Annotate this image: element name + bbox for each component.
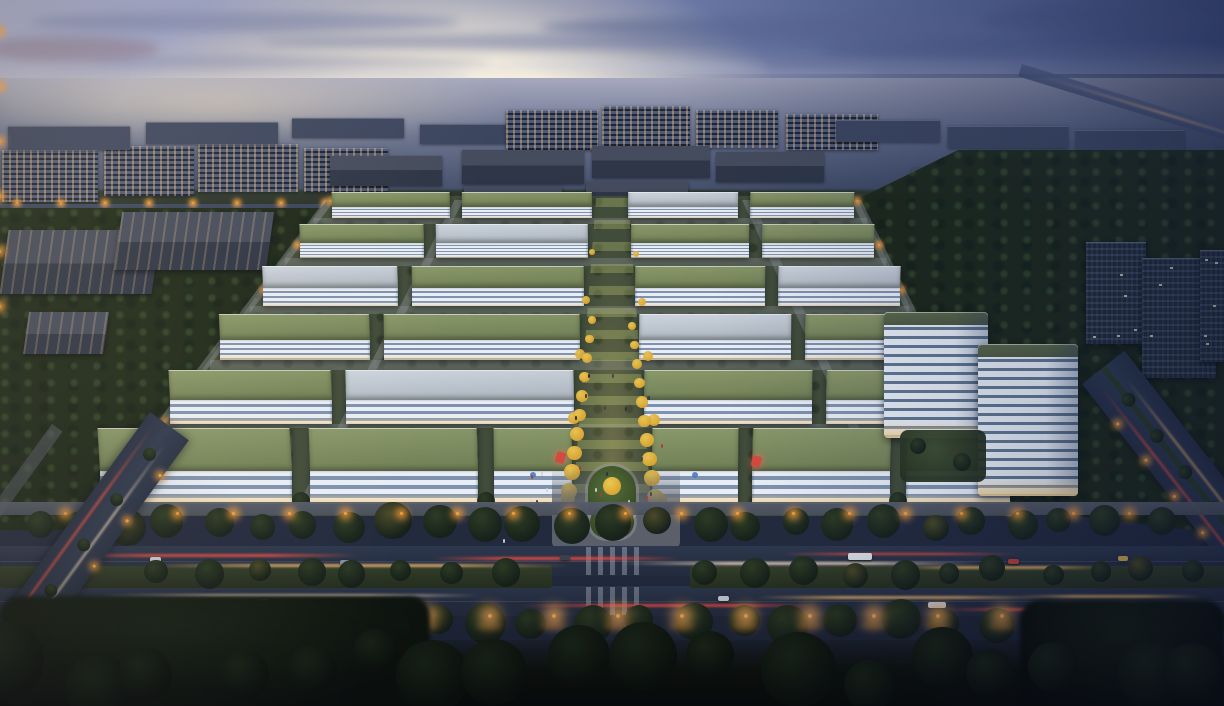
canopy-tree [218,649,269,700]
ginkgo-tree [567,446,582,461]
pedestrian [595,488,597,492]
boulevard-tree [492,558,521,587]
ground-floor-glow [412,301,584,306]
canopy-tree [548,625,610,687]
cloud [30,12,460,32]
canopy-tree [912,627,973,688]
street-lamp [736,512,739,515]
traffic-light-trail [520,604,820,607]
street-lamp [60,202,62,204]
boulevard-tree [195,559,225,589]
street-lamp [904,512,907,515]
street-lamp [400,512,403,515]
distant-warehouse [592,146,710,178]
green-roof [332,192,450,207]
ground-floor-glow [170,417,332,424]
building-facade [346,400,574,424]
tower-garden [900,430,986,482]
building-facade [263,288,398,306]
campus-building [762,224,874,258]
boulevard-tree [250,514,276,540]
lamp-glow-pool [860,622,886,630]
building-facade [384,340,580,360]
green-roof [635,266,765,288]
pedestrian [604,406,606,410]
building-facade [462,207,592,218]
campus-building [263,266,398,306]
boulevard-tree [923,515,949,541]
street-lamp [16,202,18,204]
lamp-glow-pool [796,622,822,630]
street-lamp [125,519,129,523]
lamp-glow-pool [732,622,758,630]
dark-warehouse [114,212,274,270]
green-roof [762,224,875,243]
ginkgo-tree [628,322,636,330]
distant-midrise [420,124,520,144]
green-roof [384,314,580,340]
cloud [980,6,1224,36]
campus-building [300,224,424,258]
distant-midrise-lit [602,106,690,148]
lit-window [1117,335,1120,337]
boulevard-tree [740,558,770,588]
street-lamp [936,614,940,618]
street-lamp [616,614,620,618]
lit-window [1120,274,1123,276]
pedestrian [625,407,627,411]
street-lamp [792,512,795,515]
street-lamp [456,512,459,515]
green-roof [752,428,891,471]
canopy-tree [461,639,527,705]
boulevard-tree [1046,508,1071,533]
lit-window [1150,335,1153,337]
boulevard-tree [692,560,717,585]
pedestrian [612,374,614,378]
building-facade [220,340,370,360]
campus-building [778,266,900,306]
boulevard-tree [643,507,670,534]
street-lamp [344,512,347,515]
campus-building [412,266,584,306]
street-lamp [552,614,556,618]
ginkgo-tree [582,353,592,363]
building-facade [628,207,738,218]
boulevard-tree [694,507,729,542]
garden-tree [953,453,971,471]
ground-floor-glow [263,301,398,306]
ground-floor-glow [639,354,791,360]
building-facade [752,471,890,504]
street-lamp [1116,422,1120,426]
boulevard-tree [333,512,365,544]
green-roof [652,428,739,471]
building-facade [300,243,424,258]
boulevard-tree [1091,561,1111,581]
dark-warehouse [23,312,109,354]
lit-window [1093,336,1096,338]
boulevard-tree [843,563,868,588]
distant-warehouse [716,152,824,182]
tower-base-glow [978,480,1078,496]
boulevard-tree [554,508,590,544]
ground-floor-glow [631,254,749,259]
street-lamp [148,202,150,204]
boulevard-tree [423,505,456,538]
green-roof [639,314,791,340]
street-lamp [568,512,571,515]
street-lamp [624,512,627,515]
street-lamp [744,614,748,618]
canopy-tree [966,649,1014,697]
crosswalk [586,547,644,575]
boulevard-tree [823,604,857,638]
canopy-tree [118,648,172,702]
building-facade [644,400,812,424]
pedestrian [661,444,663,448]
street-lamp [1201,531,1205,535]
lit-window [1206,343,1209,345]
green-roof [436,224,588,243]
pedestrian [531,475,533,479]
distant-midrise [836,120,940,142]
car [718,596,729,601]
boulevard-tree [289,511,317,539]
green-roof [299,224,424,243]
green-roof [628,192,738,207]
campus-building [170,370,332,424]
cloud [820,42,1220,60]
campus-street-horizontal [250,306,909,314]
ground-floor-glow [436,254,588,259]
pedestrian [579,466,581,470]
street-lamp [104,202,106,204]
green-roof [462,192,592,207]
green-roof [644,370,812,400]
campus-building [332,192,450,218]
campus-building [639,314,791,360]
tower-shade [1046,344,1078,496]
canopy-tree [396,640,469,706]
green-roof [412,266,584,288]
pedestrian [503,539,505,543]
street-lamp [848,512,851,515]
ground-floor-glow [220,354,370,360]
building-facade [631,243,749,258]
ground-floor-glow [300,254,424,259]
boulevard-tree [27,511,54,538]
campus-building [750,192,854,218]
distant-midrise-lit [2,150,98,202]
lit-window [1204,335,1207,337]
green-roof [494,428,572,471]
canopy-tree [1028,642,1078,692]
lamp-glow-pool [988,622,1014,630]
median-tree [75,536,93,554]
street-lamp [64,512,67,515]
campus-building [628,192,738,218]
lit-window [1134,329,1137,331]
distant-midrise [948,126,1068,148]
distant-midrise-lit [696,110,778,148]
boulevard-tree [1128,556,1153,581]
campus-building [346,370,574,424]
boulevard-tree [783,508,810,535]
ginkgo-tree [640,433,654,447]
boulevard-tree [1148,507,1176,535]
garden-tree [910,438,926,454]
street-lamp [512,512,515,515]
street-lamp [872,614,876,618]
distant-midrise-lit [104,146,194,196]
street-lamp [280,202,282,204]
campus-building [384,314,580,360]
distant-midrise [1076,130,1184,152]
building-facade [412,288,584,306]
boulevard-tree [249,559,271,581]
pedestrian [588,374,590,378]
campus-building [310,428,478,504]
street-lamp [192,202,194,204]
canopy-tree [1162,643,1223,704]
boulevard-tree [891,560,920,589]
green-roof [168,370,332,400]
ground-floor-glow [628,215,738,218]
street-lamp [680,614,684,618]
aerial-campus-rendering [0,0,1224,706]
pedestrian [641,457,643,461]
street-lamp [158,473,162,477]
ground-floor-glow [462,215,592,218]
boulevard-tree [1043,565,1063,585]
boulevard-tree [390,560,411,581]
ground-floor-glow [778,301,900,306]
boulevard-tree [595,504,632,541]
white-tower [884,312,988,438]
pedestrian [606,472,608,476]
street-lamp [680,512,683,515]
canopy-tree [844,660,895,706]
street-lamp [960,512,963,515]
median-tree [140,445,158,463]
green-roof [631,224,749,243]
street-lamp [1016,512,1019,515]
ground-floor-glow [332,215,450,218]
campus-street-horizontal [285,258,886,266]
street-lamp [1128,512,1131,515]
street-lamp [1000,614,1004,618]
street-lamp [236,202,238,204]
boulevard-tree [504,506,541,543]
lit-window [1170,267,1173,269]
campus-building [644,370,812,424]
boulevard-tree [939,563,959,583]
street-lamp [808,614,812,618]
distant-midrise-lit [198,144,298,192]
street-lamp [1144,458,1148,462]
green-roof [262,266,398,288]
pedestrian [546,488,548,492]
boulevard-tree [730,512,760,542]
pedestrian [646,496,648,500]
distant-midrise [146,122,278,144]
street-lamp [176,512,179,515]
cloud [470,62,770,70]
lit-window [1213,305,1216,307]
lit-window [1215,262,1218,264]
green-roof [219,314,370,340]
ground-floor-glow [346,417,574,424]
campus-building [436,224,588,258]
building-facade [635,288,765,306]
boulevard-tree [1008,510,1038,540]
boulevard-tree [150,504,184,538]
building-facade [310,471,478,504]
street-lamp [900,289,902,291]
car [928,602,946,608]
lit-window [1124,295,1127,297]
boulevard-tree [298,558,326,586]
street-lamp [92,564,96,568]
lamp-glow-pool [476,622,502,630]
gateway-emblem [692,472,698,478]
campus-building [752,428,890,504]
street-lamp [488,614,492,618]
pedestrian [647,396,649,400]
boulevard-tree [374,502,412,540]
ginkgo-tree [603,477,621,495]
distant-warehouse [330,156,442,186]
ground-floor-glow [644,417,812,424]
car [1008,559,1019,564]
building-facade [170,400,332,424]
campus-building [635,266,765,306]
white-tower [978,344,1078,496]
median-tree [108,491,126,509]
car [1118,556,1128,561]
green-roof [750,192,854,207]
campus-street-horizontal [210,360,935,370]
street-lamp [288,512,291,515]
street-lamp [1072,512,1075,515]
green-roof [345,370,574,400]
canopy-tree [761,632,835,706]
campus-building [631,224,749,258]
distant-midrise [292,118,404,138]
street-lamp [232,512,235,515]
ginkgo-tree [570,427,584,441]
car [560,555,570,560]
building-facade [639,340,791,360]
ground-floor-glow [384,354,580,360]
green-roof [309,428,478,471]
green-roof [778,266,901,288]
canopy-tree [609,622,677,690]
boulevard-tree [144,560,167,583]
street-lamp [856,200,858,202]
boulevard-tree [205,508,234,537]
street-lamp [1172,494,1176,498]
boulevard-tree [881,599,921,639]
traffic-light-trail [430,557,680,560]
campus-building [220,314,370,360]
building-facade [762,243,874,258]
boulevard-tree [729,605,760,636]
pedestrian [600,493,602,497]
boulevard-tree [789,556,818,585]
campus-building [462,192,592,218]
boulevard-tree [1089,505,1120,536]
cloud [90,56,490,68]
building-facade [436,243,588,258]
ginkgo-tree [632,359,642,369]
boulevard-tree [867,504,900,537]
building-facade [332,207,450,218]
canopy-tree [287,645,337,695]
building-facade [750,207,854,218]
ground-floor-glow [762,254,874,259]
boulevard-tree [468,507,503,542]
ginkgo-tree [588,316,596,324]
ground-floor-glow [750,215,854,218]
lit-window [1159,284,1162,286]
distant-warehouse [462,150,584,184]
distant-midrise [8,126,130,150]
building-facade [778,288,900,306]
car [848,553,872,560]
traffic-light-trail [780,553,1020,555]
ground-floor-glow [635,301,765,306]
lamp-glow-pool [668,622,694,630]
lit-window [1205,259,1208,261]
boulevard-tree [338,560,365,587]
distant-midrise-lit [506,110,598,150]
traffic-light-trail [1020,595,1200,598]
